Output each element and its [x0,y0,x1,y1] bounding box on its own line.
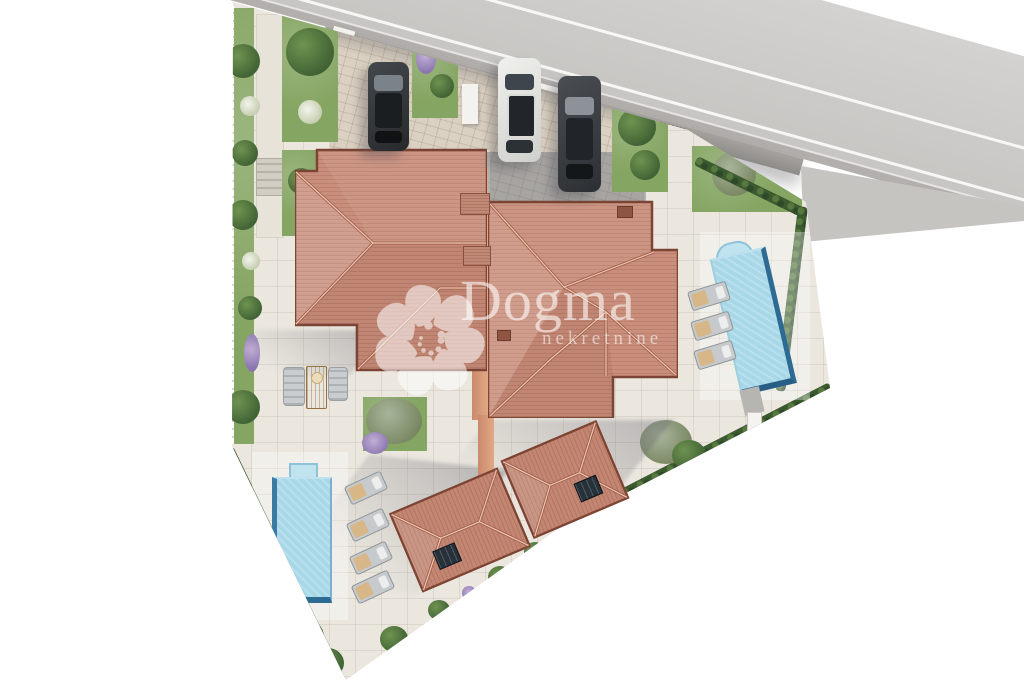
flower-bush [298,100,322,124]
bush [248,590,292,632]
car-dark-right [558,76,601,192]
windshield [565,97,594,115]
car-roof [375,93,402,128]
pool-left [272,477,332,603]
bush [312,648,344,678]
car-roof [566,118,593,160]
lavender [462,586,476,600]
tree [286,28,334,76]
bush [380,626,408,652]
bush [630,150,660,180]
lavender [362,432,388,454]
roof-ridges [488,200,678,418]
patio-chair [283,367,305,406]
plate [311,372,323,384]
chimney [617,206,633,218]
villa-left-roof [295,148,487,372]
sunroof [507,94,536,138]
bush [226,44,260,78]
windshield [374,75,403,91]
rear-window [566,164,593,179]
bush [232,140,258,166]
shower-pad [747,412,762,431]
bush [238,296,262,320]
bush [488,566,512,588]
gate-pillar [462,84,478,124]
bush [672,440,706,470]
car-white [498,58,541,162]
bush [428,600,450,620]
bush [226,390,260,424]
rear-window [375,131,402,143]
entrance-canopy [460,193,490,215]
garden-path [256,14,284,238]
bush [284,618,324,656]
patio-chair [328,367,348,401]
villa-right-roof [488,200,678,418]
entrance-steps [256,158,284,196]
bush [430,74,454,98]
flower-bush [242,252,260,270]
windshield [505,74,534,90]
rear-window [506,140,533,153]
bush [238,560,268,590]
entrance-canopy [463,246,491,266]
car-dark-left [368,62,409,151]
chimney [497,330,511,341]
roof-ridges [295,148,487,372]
site-plan-render: Dogma nekretnine [0,0,1024,683]
flower-bush [240,96,260,116]
bush [228,200,258,230]
